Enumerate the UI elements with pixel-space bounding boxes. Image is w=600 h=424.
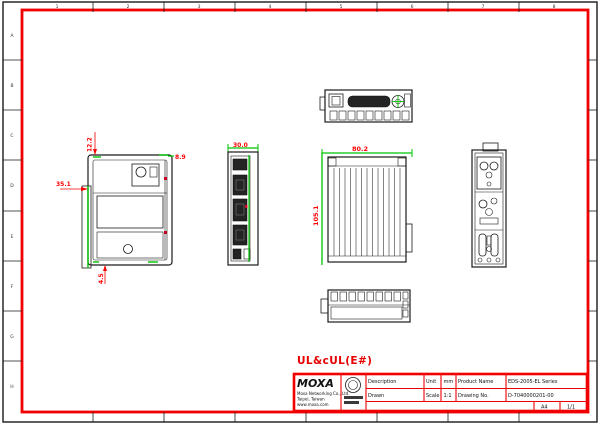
port-1 xyxy=(233,175,247,195)
product-name-value: EDS-2005-EL Series xyxy=(508,379,558,385)
screw-hole-bottom xyxy=(124,245,133,254)
side-fins xyxy=(334,168,400,256)
dim-rear-left: 35.1 xyxy=(56,181,71,188)
svg-text:1: 1 xyxy=(56,4,59,10)
ul-certification-note: UL&cUL(E#) xyxy=(297,355,372,367)
svg-text:F: F xyxy=(11,284,14,290)
clip-slot-right xyxy=(491,234,498,256)
moxa-logo: MOXA xyxy=(297,377,334,390)
marker-dot xyxy=(164,177,167,180)
led-block xyxy=(233,159,247,170)
drawing-no-label: Drawing No. xyxy=(458,393,489,399)
svg-text:A: A xyxy=(10,33,14,39)
side-view: 80.2 105.1 xyxy=(312,145,412,265)
svg-text:H: H xyxy=(10,384,13,390)
svg-text:B: B xyxy=(10,83,13,89)
logo-address-line2: Taipei, Taiwan xyxy=(296,397,325,402)
unit-label: Unit xyxy=(426,379,436,385)
port-2 xyxy=(233,199,247,221)
top-view xyxy=(320,90,412,122)
svg-text:3: 3 xyxy=(198,4,201,10)
svg-text:8: 8 xyxy=(553,4,556,10)
product-name-label: Product Name xyxy=(458,379,493,385)
right-panel-view xyxy=(472,143,506,267)
reset-recess xyxy=(233,249,241,259)
svg-text:2: 2 xyxy=(127,4,130,10)
connector-circle-2 xyxy=(491,198,497,204)
dim-rear-right: 8.9 xyxy=(175,154,186,161)
side-clip-notch xyxy=(406,224,412,252)
vent-slot xyxy=(348,96,390,107)
drawn-label: Drawn xyxy=(368,393,384,399)
dim-side-height: 105.1 xyxy=(312,205,320,226)
drawing-canvas: 1 2 3 4 5 6 7 8 A B C D E F G H xyxy=(0,0,600,424)
description-label: Description xyxy=(368,379,396,385)
svg-text:7: 7 xyxy=(482,4,485,10)
rohs-stamp-icon xyxy=(346,378,361,393)
title-block: MOXA Moxa Networking Co., Ltd. Taipei, T… xyxy=(294,374,587,411)
terminal-screw-3 xyxy=(486,172,492,178)
connector-circle-3 xyxy=(486,209,493,216)
title-block-fields: Description Unit mm Product Name EDS-200… xyxy=(368,379,575,411)
bottom-vent-row xyxy=(331,292,401,301)
unit-value: mm xyxy=(444,379,454,385)
bottom-view xyxy=(321,290,410,322)
dim-front-width: 30.0 xyxy=(233,142,248,149)
sheet-size-value: A4 xyxy=(541,405,548,411)
sheet-number-value: 1/1 xyxy=(567,405,575,411)
din-rail-clip xyxy=(82,186,91,268)
svg-text:6: 6 xyxy=(411,4,414,10)
scale-label: Scale xyxy=(426,393,439,399)
connector-circle-1 xyxy=(479,200,487,208)
dim-side-width: 80.2 xyxy=(352,145,368,153)
svg-text:C: C xyxy=(10,133,13,139)
screw-hole-top xyxy=(136,167,146,177)
svg-text:5: 5 xyxy=(340,4,343,10)
svg-text:G: G xyxy=(10,334,14,340)
svg-text:D: D xyxy=(10,183,14,189)
rear-side-view: 12.2 35.1 4.5 8.9 xyxy=(56,132,186,284)
front-view: 30.0 xyxy=(228,142,258,265)
dim-rear-top: 12.2 xyxy=(87,137,94,152)
svg-text:4: 4 xyxy=(269,4,272,10)
dim-rear-bottom: 4.5 xyxy=(98,273,105,284)
drawing-no-value: D-7040000201-00 xyxy=(508,393,554,399)
port-3 xyxy=(233,225,247,245)
zone-labels: 1 2 3 4 5 6 7 8 A B C D E F G H xyxy=(10,4,555,390)
scale-value: 1:1 xyxy=(444,393,452,399)
stamp-text-line xyxy=(344,396,363,399)
rear-view-highlights xyxy=(88,155,168,268)
marker-dot xyxy=(164,231,167,234)
terminal-screw-2 xyxy=(490,162,498,170)
svg-text:E: E xyxy=(11,234,14,240)
stamp-text-line xyxy=(344,401,359,404)
clip-slot-left xyxy=(479,234,486,256)
logo-address-line3: www.moxa.com xyxy=(297,402,329,407)
top-vent-row xyxy=(330,111,409,120)
marker-dot xyxy=(245,205,248,208)
terminal-screw-1 xyxy=(480,162,488,170)
drawing-sheet: 1 2 3 4 5 6 7 8 A B C D E F G H xyxy=(0,0,600,424)
logo-address-line1: Moxa Networking Co., Ltd. xyxy=(297,391,350,396)
